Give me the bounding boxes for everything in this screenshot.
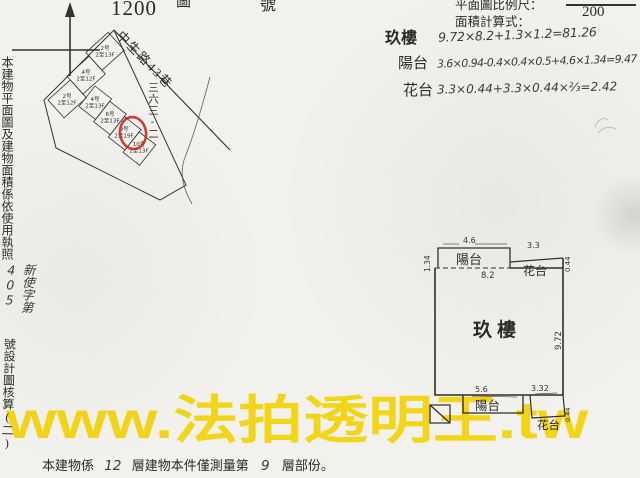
plan-scale-value: 200 (582, 4, 605, 21)
lot-number-label: 三六三-二 (145, 82, 160, 142)
unit-label: 4号 (82, 69, 91, 76)
unit-label: 6号 (106, 111, 115, 118)
unit-floors-subject: 2至19F (114, 133, 133, 140)
footer-text-2: 層建物本件僅測量第 (132, 458, 249, 473)
unit-floors: 2至13F (85, 103, 104, 110)
dim-top-balcony-depth: 1.34 (423, 255, 432, 272)
map-scale-number: 1200 (111, 0, 157, 21)
unit-floors: 2至12F (57, 100, 76, 107)
calc-label-flowerbed: 花台 (403, 79, 433, 100)
top-balcony-label: 陽台 (456, 252, 482, 267)
footer-hand-building-floors: 12 (104, 458, 121, 474)
unit-label: 2号 (63, 93, 72, 100)
dim-flower-top-depth: 0.44 (564, 256, 572, 272)
clipped-title-fragment-left: 圖 (176, 0, 191, 11)
dim-room-width: 8.2 (481, 271, 495, 281)
footer-hand-surveyed-floor: 9 (261, 458, 270, 474)
footer-note: 本建物係 12 層建物本件僅測量第 9 層部份。 (42, 455, 334, 474)
watermark-text: www.法拍透明王.tw (6, 395, 588, 447)
dim-room-height: 9.72 (554, 331, 564, 350)
unit-label: 4号 (91, 96, 100, 103)
dim-top-balcony-width: 4.6 (463, 236, 476, 245)
calc-formula-flowerbed: 3.3×0.44+3.3×0.44×⅔=2.42 (437, 79, 617, 96)
calc-label-balcony: 陽台 (398, 52, 428, 73)
site-location-map: 2号 2至12F 4号 2至12F 2号 2至13F 4号 2至13F 6号 2… (28, 20, 240, 216)
footer-text-1: 本建物係 (42, 458, 94, 473)
unit-floors: 2至12F (76, 76, 95, 83)
unit-label: 2号 (101, 45, 110, 52)
unit-floors: 2至13F (100, 118, 119, 125)
top-flowerbed-outline (510, 258, 563, 262)
dim-flower-top-width: 3.3 (527, 241, 540, 250)
calc-label-9f: 玖樓 (385, 24, 417, 48)
margin-note-printed: 本建物平面圖及建物面積係依使用執照 (1, 56, 13, 271)
footer-text-3: 層部份。 (282, 458, 334, 473)
room-label: 玖樓 (473, 318, 521, 341)
block-boundary (44, 30, 186, 200)
unit-floors: 2至13F (95, 52, 114, 59)
faint-scribble (585, 102, 635, 147)
top-flowerbed-label: 花台 (523, 263, 547, 278)
clipped-title-fragment-right: 號 (260, 0, 276, 15)
margin-note-handwritten: 新使字第405 (0, 262, 38, 342)
calc-formula-balcony: 3.6×0.94-0.4×0.4×0.5+4.6×1.34=9.47 (437, 52, 637, 70)
scanned-survey-document: 1200 圖 號 平面圖比例尺： 200 面積計算式： 玖樓 9.72×8.2+… (0, 0, 640, 478)
